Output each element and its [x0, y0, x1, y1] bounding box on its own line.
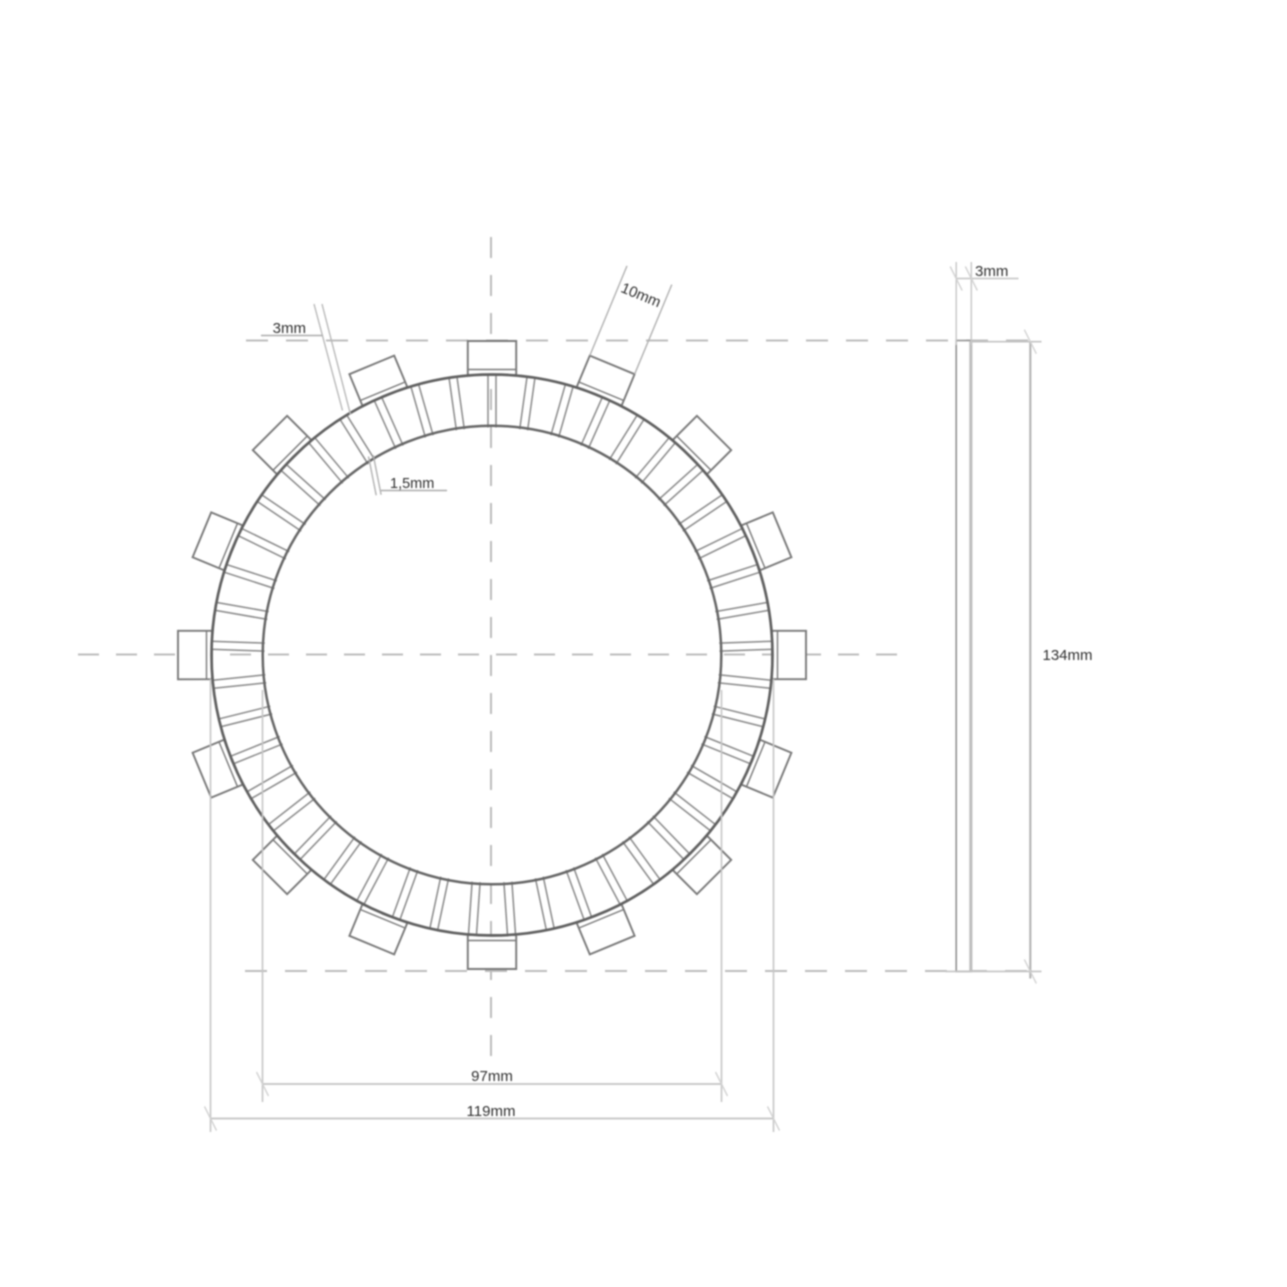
svg-text:3mm: 3mm — [975, 263, 1008, 280]
svg-text:1,5mm: 1,5mm — [390, 476, 434, 492]
svg-text:134mm: 134mm — [1043, 647, 1093, 664]
svg-text:10mm: 10mm — [618, 280, 663, 312]
svg-text:119mm: 119mm — [467, 1103, 516, 1120]
svg-text:97mm: 97mm — [471, 1068, 513, 1085]
svg-text:3mm: 3mm — [273, 320, 306, 337]
